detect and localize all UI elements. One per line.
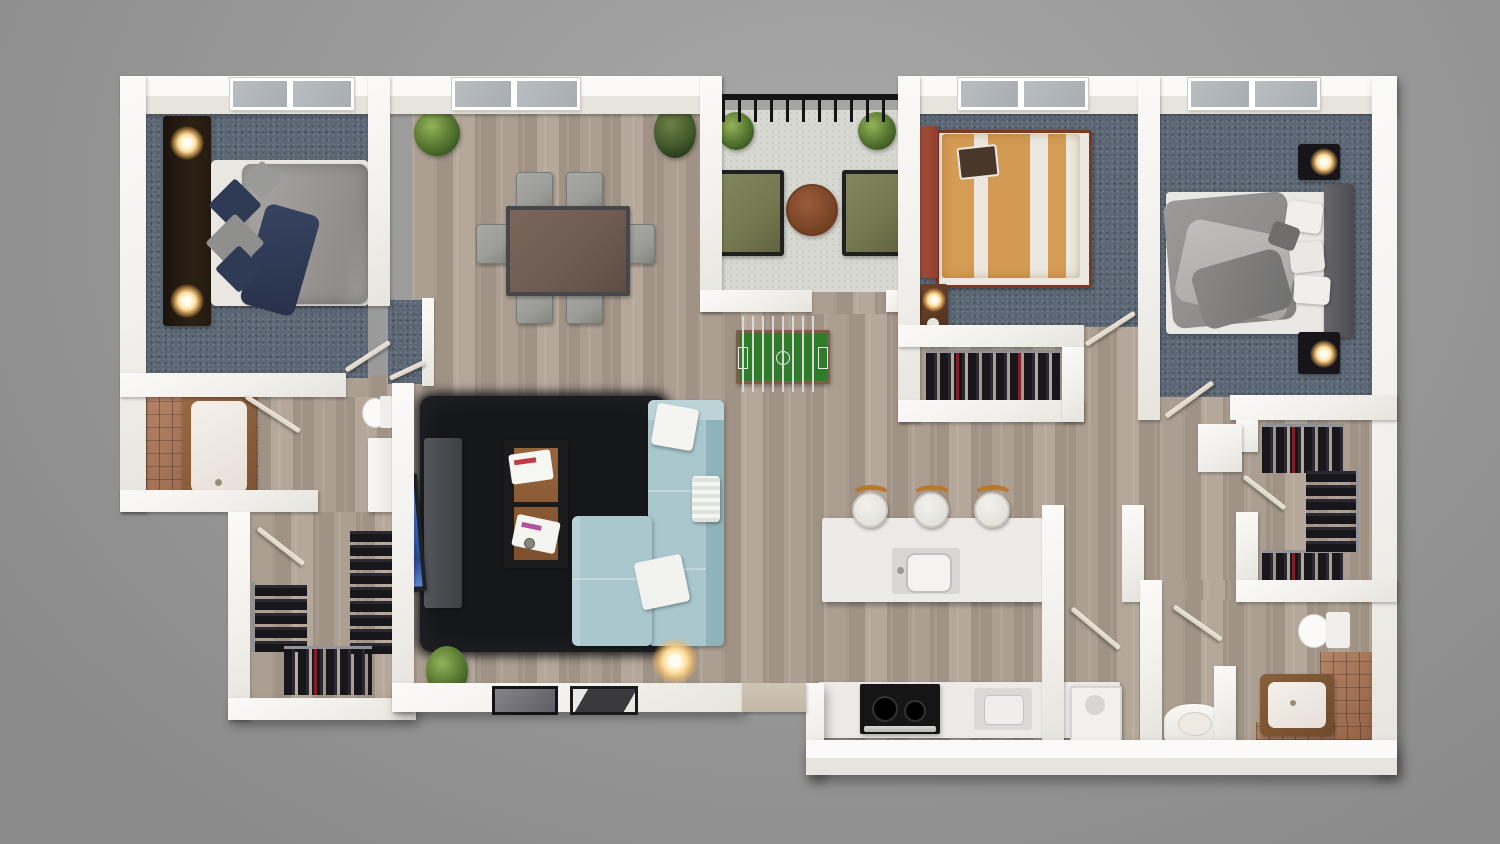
- cooktop-burner-right: [904, 700, 926, 722]
- bedroom3-headboard: [1324, 184, 1354, 338]
- bedroom1-window-pane-left: [233, 81, 287, 107]
- wall-bedroom2-bottom-a: [898, 325, 1084, 347]
- bedroom1-ensuite-doorway-floor: [346, 375, 392, 397]
- sofa-pillow-striped: [692, 476, 720, 522]
- wall-bedroom2-3-divider: [1138, 76, 1160, 420]
- wall-balcony-bottom-a: [700, 290, 812, 312]
- kitchen-range-cooktop: [860, 684, 940, 734]
- bedroom2-lamp: [922, 288, 946, 312]
- wall-kitchen-bottom: [806, 740, 1397, 775]
- wall-closet2-right: [1062, 347, 1084, 422]
- entry-door-threshold: [742, 683, 806, 712]
- balcony-doorway-floor: [812, 290, 886, 314]
- wall-stub-bed3-door: [1198, 424, 1242, 472]
- coffee-cup: [524, 538, 535, 549]
- bedroom1-lamp-top: [170, 126, 204, 160]
- bedroom3-pillow-c: [1293, 275, 1331, 305]
- closet1-rack-right: [350, 528, 395, 654]
- bedroom3-lamp-top: [1310, 148, 1338, 176]
- bathroom2-tub-drain: [1290, 700, 1296, 706]
- dining-table: [506, 206, 630, 296]
- wall-outer-right: [1372, 76, 1397, 775]
- wall-living-left: [392, 383, 414, 712]
- bathroom2-sink-basin: [1178, 712, 1212, 736]
- picture-frame-left: [492, 686, 558, 715]
- floor-lamp-lit: [652, 638, 698, 684]
- wall-closet1-left: [228, 512, 250, 720]
- balcony-armchair-left: [718, 170, 784, 256]
- coffee-table-divider: [514, 502, 558, 507]
- bedroom3-window-pane-left: [1191, 81, 1249, 107]
- wall-top-left: [120, 76, 722, 114]
- bathroom2-doorway-floor: [1162, 580, 1236, 602]
- wall-bathroom1-bottom: [120, 490, 318, 512]
- bedroom2-brown-pillow: [956, 144, 999, 180]
- wall-living-bottom-ledge: [392, 683, 742, 712]
- bathroom2-toilet-tank: [1326, 612, 1350, 648]
- kitchen-second-sink-cabinet: [974, 688, 1032, 730]
- magazine-bottom-print: [521, 522, 542, 531]
- foosball-rods: [742, 316, 822, 392]
- sofa-pillow-bottom: [634, 554, 691, 611]
- balcony-railing: [722, 94, 898, 122]
- closet1-rack-bottom: [284, 646, 372, 695]
- sofa-pillow-top: [651, 403, 700, 452]
- magazine-top-print: [514, 457, 536, 465]
- wall-kitchen-hall: [1042, 505, 1064, 740]
- bedroom3-lamp-bottom: [1310, 340, 1338, 368]
- living-window: [452, 78, 580, 110]
- wall-bedroom1-bottom: [120, 373, 346, 397]
- picture-frame-right: [570, 686, 638, 715]
- closet-right-rack-top: [1262, 424, 1344, 473]
- sofa-back-cushions: [706, 400, 724, 646]
- wall-bathroom2-partition: [1214, 666, 1236, 740]
- living-window-pane-left: [455, 81, 511, 107]
- wall-balcony-left: [700, 76, 722, 312]
- tv-media-cabinet: [424, 438, 462, 608]
- washing-machine: [1070, 686, 1122, 744]
- wall-closet3-left-b: [1236, 512, 1258, 582]
- range-handle-bar: [864, 726, 936, 732]
- wall-laundry-right: [1140, 580, 1162, 740]
- wall-bedroom1-alcove: [422, 298, 434, 386]
- bedroom1-window-pane-right: [293, 81, 351, 107]
- magazine-top: [508, 449, 554, 485]
- kitchen-sink-faucet: [897, 567, 904, 574]
- closet1-rack-left: [252, 582, 307, 652]
- bar-stool-3: [974, 492, 1010, 528]
- floor-plan: [0, 0, 1500, 844]
- wall-bedroom1-right: [368, 76, 390, 306]
- bedroom2-window-pane-right: [1024, 81, 1085, 107]
- wall-outer-left: [120, 76, 146, 512]
- bathroom2-bathtub: [1260, 674, 1334, 736]
- kitchen-island-sink-panel: [892, 548, 960, 594]
- bathroom1-vanity: [368, 438, 394, 512]
- closet-right-rack-middle: [1306, 468, 1359, 552]
- plant-living-corner: [414, 110, 460, 156]
- bedroom2-window: [958, 78, 1088, 110]
- wall-closet3-bottom: [1236, 580, 1397, 602]
- wall-closet1-bottom: [228, 698, 416, 720]
- bathroom1-bathtub: [182, 392, 256, 502]
- bedroom2-window-pane-left: [961, 81, 1018, 107]
- bedroom1-lamp-bottom: [170, 284, 204, 318]
- wall-bedroom3-bottom: [1230, 395, 1397, 420]
- bathroom1-toilet-tank: [380, 396, 392, 428]
- washer-lid-circle: [1085, 695, 1105, 715]
- bedroom3-window-pane-right: [1255, 81, 1317, 107]
- bar-stool-2: [913, 492, 949, 528]
- bathroom1-tub-drain: [215, 479, 222, 486]
- bedroom3-window: [1188, 78, 1320, 110]
- wall-bedroom2-left: [898, 76, 920, 422]
- bedroom1-window: [230, 78, 354, 110]
- balcony-round-table: [786, 184, 838, 236]
- bedroom2-headboard: [920, 126, 938, 278]
- kitchen-sink-basin: [906, 553, 952, 593]
- kitchen-second-sink: [984, 695, 1024, 725]
- bar-stool-1: [852, 492, 888, 528]
- cooktop-burner-left: [872, 696, 898, 722]
- living-window-pane-right: [517, 81, 577, 107]
- wall-closet2-bottom: [898, 400, 1084, 422]
- bathroom2-tub-basin: [1268, 682, 1326, 728]
